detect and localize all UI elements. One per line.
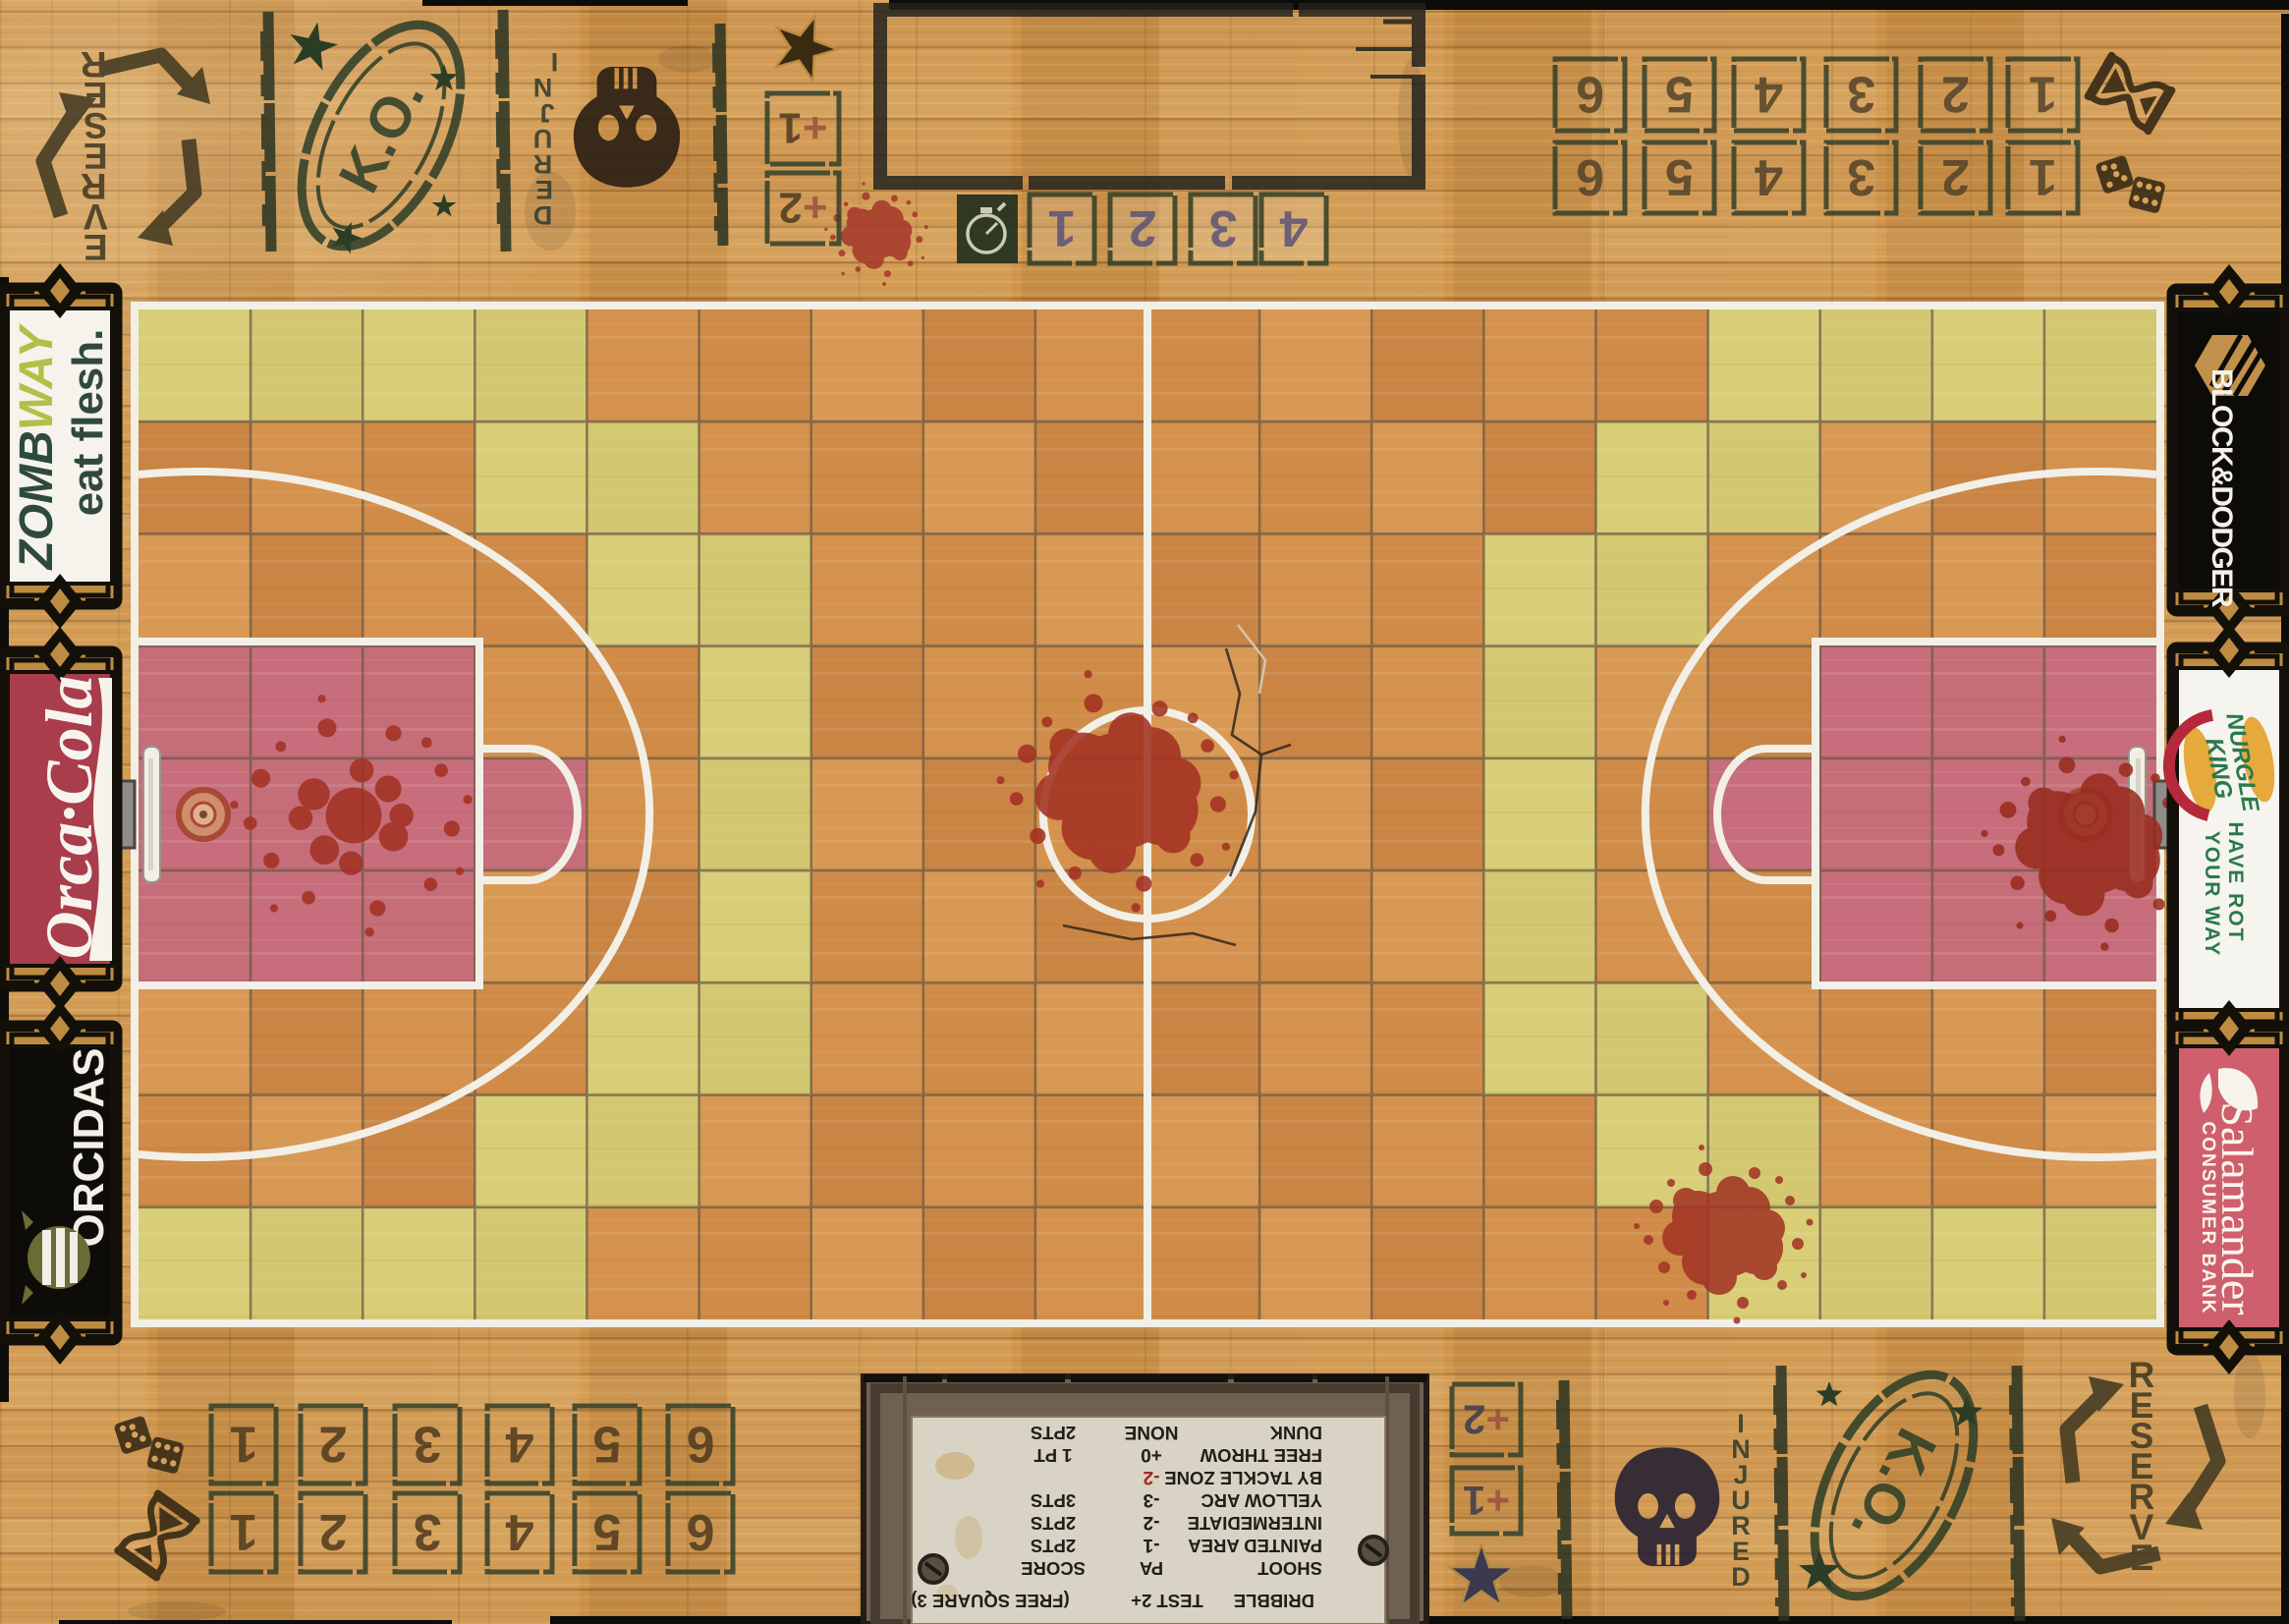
svg-text:TEST 2+: TEST 2+ (1131, 1591, 1203, 1611)
svg-text:4: 4 (1755, 65, 1783, 122)
svg-text:4: 4 (505, 1415, 533, 1472)
svg-text:BY TACKLE ZONE: BY TACKLE ZONE (1164, 1468, 1322, 1488)
svg-text:YOUR WAY: YOUR WAY (2201, 831, 2223, 957)
svg-text:2: 2 (1129, 199, 1157, 256)
svg-text:6: 6 (1576, 65, 1604, 122)
svg-text:SCORE: SCORE (1021, 1558, 1086, 1579)
svg-text:1: 1 (230, 1415, 258, 1472)
svg-text:Orca·Cola: Orca·Cola (31, 676, 106, 960)
svg-text:DUNK: DUNK (1269, 1423, 1322, 1443)
svg-text:-1: -1 (1143, 1535, 1159, 1555)
svg-text:PAINTED AREA: PAINTED AREA (1188, 1536, 1322, 1556)
svg-text:3: 3 (1209, 199, 1238, 256)
svg-text:2: 2 (319, 1503, 348, 1560)
svg-text:6: 6 (687, 1503, 715, 1560)
svg-text:ORCIDAS: ORCIDAS (65, 1048, 113, 1248)
svg-text:3PTS: 3PTS (1031, 1490, 1076, 1511)
svg-text:1: 1 (230, 1503, 258, 1560)
svg-text:+2: +2 (778, 184, 827, 232)
svg-text:3: 3 (1847, 148, 1875, 205)
svg-text:-3: -3 (1144, 1489, 1160, 1510)
svg-text:SHOOT: SHOOT (1257, 1558, 1322, 1579)
svg-text:ZOMBWAY: ZOMBWAY (11, 322, 63, 571)
svg-text:K.O.: K.O. (1839, 1419, 1949, 1552)
svg-text:+1: +1 (778, 104, 827, 152)
svg-text:CONSUMER BANK: CONSUMER BANK (2198, 1122, 2218, 1316)
svg-text:1 PT: 1 PT (1033, 1445, 1073, 1466)
svg-text:3: 3 (1847, 65, 1875, 122)
svg-text:4: 4 (505, 1503, 533, 1560)
svg-text:2: 2 (1941, 148, 1970, 205)
svg-text:eat flesh.: eat flesh. (64, 329, 112, 517)
svg-text:DRIBBLE: DRIBBLE (1234, 1591, 1314, 1611)
svg-text:5: 5 (1665, 65, 1694, 122)
svg-text:5: 5 (1665, 148, 1694, 205)
svg-text:4: 4 (1755, 148, 1783, 205)
svg-text:Salamander: Salamander (2212, 1101, 2262, 1315)
svg-text:RESERVE: RESERVE (81, 44, 108, 267)
svg-text:(FREE SQUARE 3): (FREE SQUARE 3) (911, 1591, 1069, 1611)
svg-text:6: 6 (687, 1415, 715, 1472)
svg-text:-2: -2 (1144, 1467, 1160, 1487)
svg-text:-2: -2 (1144, 1512, 1160, 1533)
svg-text:2: 2 (1941, 65, 1970, 122)
svg-text:4: 4 (1279, 199, 1308, 256)
svg-text:+1: +1 (1463, 1478, 1510, 1524)
svg-text:3: 3 (414, 1415, 442, 1472)
svg-text:NONE: NONE (1125, 1422, 1179, 1442)
svg-text:FREE THROW: FREE THROW (1200, 1445, 1322, 1466)
svg-text:+0: +0 (1141, 1444, 1162, 1465)
svg-text:2PTS: 2PTS (1031, 1536, 1076, 1556)
svg-text:5: 5 (593, 1415, 622, 1472)
svg-text:K.O.: K.O. (326, 69, 436, 202)
svg-text:BLOCK&DODGER: BLOCK&DODGER (2205, 368, 2238, 608)
svg-text:2PTS: 2PTS (1031, 1513, 1076, 1534)
svg-text:YELLOW ARC: YELLOW ARC (1200, 1490, 1322, 1511)
svg-text:3: 3 (414, 1503, 442, 1560)
svg-text:2: 2 (319, 1415, 348, 1472)
svg-text:RESERVE: RESERVE (2129, 1355, 2155, 1578)
svg-text:PA: PA (1140, 1558, 1163, 1579)
svg-text:HAVE ROT: HAVE ROT (2224, 822, 2247, 943)
svg-text:+2: +2 (1463, 1396, 1510, 1442)
svg-text:1: 1 (2029, 148, 2057, 205)
svg-text:6: 6 (1576, 148, 1604, 205)
svg-text:2PTS: 2PTS (1031, 1423, 1076, 1443)
svg-text:1: 1 (2029, 65, 2057, 122)
svg-text:5: 5 (593, 1503, 622, 1560)
svg-text:INJURED: INJURED (1731, 1409, 1751, 1592)
svg-text:INTERMEDIATE: INTERMEDIATE (1188, 1513, 1322, 1534)
svg-text:1: 1 (1048, 199, 1077, 256)
